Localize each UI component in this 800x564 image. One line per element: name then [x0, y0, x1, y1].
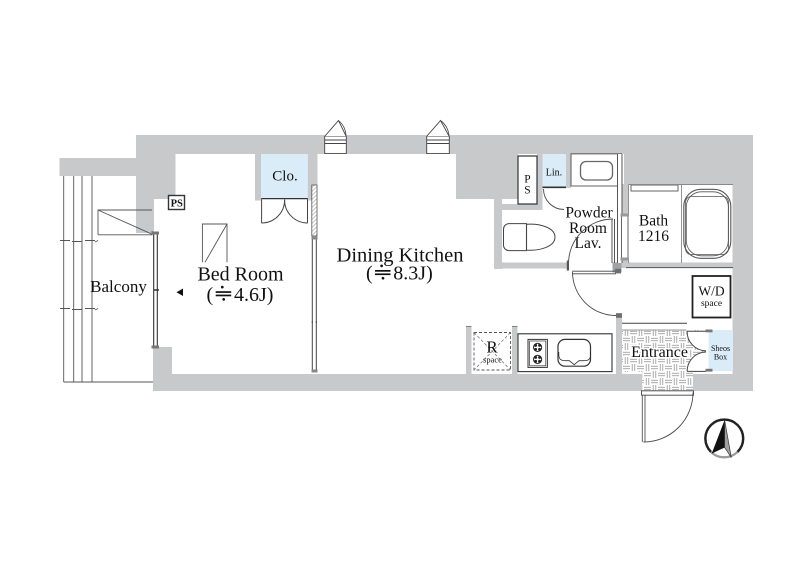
svg-text:Lav.: Lav.: [575, 235, 602, 252]
svg-text:Clo.: Clo.: [272, 169, 297, 185]
svg-text:Entrance: Entrance: [631, 344, 688, 361]
svg-text:space: space: [701, 299, 722, 309]
svg-text:PS: PS: [171, 199, 183, 210]
svg-text:Powder: Powder: [565, 205, 613, 222]
svg-text:space: space: [483, 355, 502, 365]
svg-text:Box: Box: [714, 353, 727, 362]
svg-text:Bed Room: Bed Room: [197, 264, 284, 286]
svg-text:4.6J): 4.6J): [234, 284, 273, 306]
svg-text:Lin.: Lin.: [546, 168, 562, 179]
svg-text:(: (: [366, 263, 373, 285]
svg-text:S: S: [524, 185, 530, 197]
svg-text:8.3J): 8.3J): [393, 263, 432, 285]
svg-text:(: (: [207, 284, 214, 306]
svg-text:Balcony: Balcony: [90, 277, 147, 296]
svg-text:1216: 1216: [638, 228, 669, 245]
svg-text:W/D: W/D: [698, 284, 724, 299]
svg-text:Bath: Bath: [639, 213, 669, 230]
